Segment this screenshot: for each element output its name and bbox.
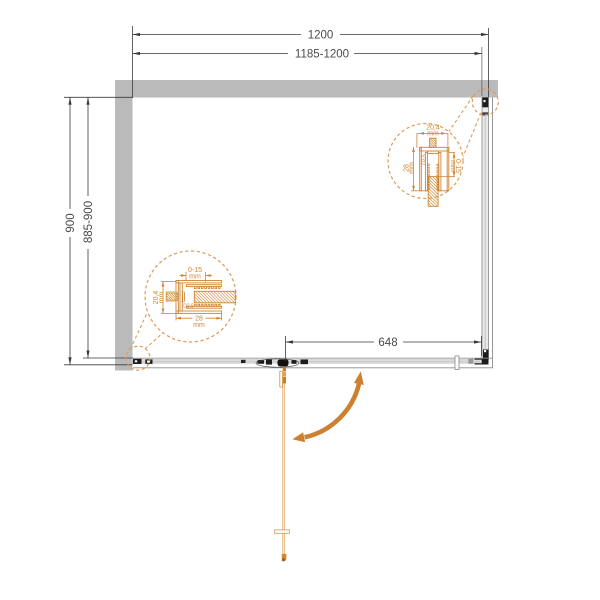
svg-text:900: 900 bbox=[65, 213, 77, 232]
svg-text:mm: mm bbox=[189, 273, 201, 280]
svg-text:1185-1200: 1185-1200 bbox=[295, 48, 349, 60]
svg-text:mm: mm bbox=[449, 160, 456, 172]
svg-text:648: 648 bbox=[378, 337, 397, 349]
svg-text:D3,5: D3,5 bbox=[422, 154, 428, 165]
svg-text:mm: mm bbox=[427, 131, 439, 138]
svg-text:mm: mm bbox=[409, 162, 416, 174]
svg-text:mm: mm bbox=[159, 292, 166, 304]
svg-text:1200: 1200 bbox=[308, 29, 334, 41]
svg-text:885-900: 885-900 bbox=[83, 201, 95, 243]
svg-text:mm: mm bbox=[193, 322, 205, 329]
svg-text:D3,5: D3,5 bbox=[183, 304, 194, 310]
